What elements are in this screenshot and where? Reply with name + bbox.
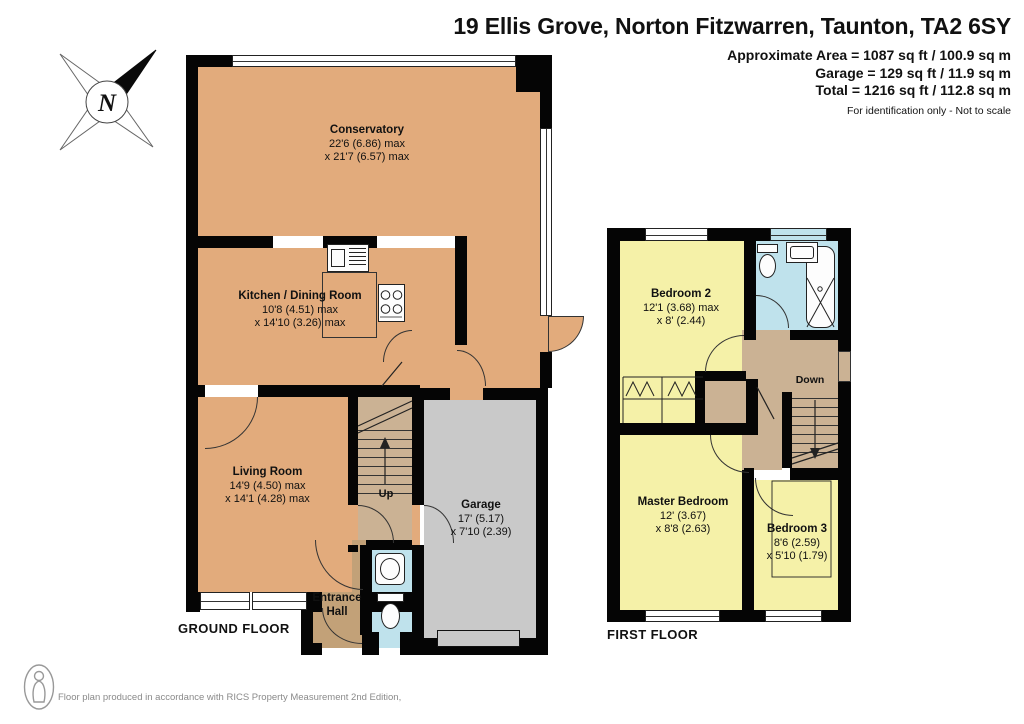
staircase-down-treads <box>792 398 838 456</box>
room-dimensions: 14'9 (4.50) max <box>170 480 365 494</box>
room-dimensions: x 5'10 (1.79) <box>737 550 857 564</box>
wall <box>782 392 792 468</box>
room-name: Master Bedroom <box>603 496 763 510</box>
back-door-swing <box>548 316 584 352</box>
wc-toilet-cistern <box>377 593 404 602</box>
conservatory-window <box>232 55 516 67</box>
wall <box>400 632 412 655</box>
wall <box>744 330 756 340</box>
wall <box>746 379 758 435</box>
wc-toilet-bowl <box>381 603 400 629</box>
garage-door <box>437 630 520 647</box>
conservatory-side-window <box>540 128 552 316</box>
wall <box>790 330 838 340</box>
room-label-conservatory: Conservatory 22'6 (6.86) max x 21'7 (6.5… <box>267 124 467 165</box>
room-dimensions: 8'6 (2.59) <box>737 537 857 551</box>
wall <box>186 55 198 612</box>
wall <box>790 468 838 480</box>
room-label-bedroom2: Bedroom 2 12'1 (3.68) max x 8' (2.44) <box>601 288 761 329</box>
wall <box>695 371 705 423</box>
staircase-up-treads <box>358 430 412 494</box>
wall <box>186 236 273 248</box>
floorplan-page: 19 Ellis Grove, Norton Fitzwarren, Taunt… <box>0 0 1024 724</box>
total-area-line: Total = 1216 sq ft / 112.8 sq m <box>727 82 1011 100</box>
wall <box>540 55 552 128</box>
room-label-garage: Garage 17' (5.17) x 7'10 (2.39) <box>421 499 541 540</box>
room-name: Bedroom 3 <box>737 523 857 537</box>
room-name: Conservatory <box>267 124 467 138</box>
living-room-window <box>200 592 250 610</box>
master-bedroom-window <box>645 610 720 622</box>
sink-drainer <box>349 248 366 268</box>
wall <box>412 388 424 505</box>
first-floor-title: FIRST FLOOR <box>607 627 698 642</box>
bathroom-sink-bowl <box>790 246 814 259</box>
wall <box>258 385 420 397</box>
wall <box>186 592 200 612</box>
compass-north-letter: N <box>97 90 117 117</box>
room-dimensions: 12' (3.67) <box>603 510 763 524</box>
room-name: Entrance Hall <box>303 592 371 619</box>
footer-line1: Floor plan produced in accordance with R… <box>58 692 419 705</box>
room-dimensions: x 14'10 (3.26) max <box>202 317 398 331</box>
wall <box>540 352 552 388</box>
closet-floor <box>705 381 746 423</box>
wall <box>186 55 233 67</box>
room-name: Kitchen / Dining Room <box>202 290 398 304</box>
wc-recess-floor <box>379 632 400 648</box>
wall <box>412 388 450 400</box>
footer-disclaimer: Floor plan produced in accordance with R… <box>58 667 419 724</box>
ground-floor-title: GROUND FLOOR <box>178 621 290 636</box>
toilet-cistern <box>757 244 778 253</box>
stairs-down-label: Down <box>782 374 838 386</box>
room-dimensions: 10'8 (4.51) max <box>202 304 398 318</box>
compass-icon: N <box>50 40 165 155</box>
room-label-kitchen: Kitchen / Dining Room 10'8 (4.51) max x … <box>202 290 398 331</box>
room-name: Bedroom 2 <box>601 288 761 302</box>
wall <box>612 423 746 435</box>
room-dimensions: 17' (5.17) <box>421 513 541 527</box>
stairs-up-label: Up <box>366 488 406 500</box>
room-dimensions: 12'1 (3.68) max <box>601 302 761 316</box>
area-summary: Approximate Area = 1087 sq ft / 100.9 sq… <box>727 47 1011 120</box>
landing-recess <box>838 351 851 382</box>
wall <box>186 385 205 397</box>
room-dimensions: x 7'10 (2.39) <box>421 526 541 540</box>
garage-area-line: Garage = 129 sq ft / 11.9 sq m <box>727 65 1011 83</box>
room-name: Living Room <box>170 466 365 480</box>
sink-bowl <box>331 249 345 267</box>
nichecom-person-icon <box>22 663 56 711</box>
room-name: Garage <box>421 499 541 513</box>
wall <box>455 236 467 345</box>
room-dimensions: 22'6 (6.86) max <box>267 138 467 152</box>
room-dimensions: x 21'7 (6.57) max <box>267 151 467 165</box>
wall <box>362 632 379 655</box>
approximate-area-line: Approximate Area = 1087 sq ft / 100.9 sq… <box>727 47 1011 65</box>
living-room-window <box>252 592 307 610</box>
wall <box>301 643 322 655</box>
bedroom2-window <box>645 228 708 241</box>
page-title: 19 Ellis Grove, Norton Fitzwarren, Taunt… <box>453 13 1011 40</box>
bedroom3-window <box>765 610 822 622</box>
room-dimensions: x 8' (2.44) <box>601 315 761 329</box>
room-label-living-room: Living Room 14'9 (4.50) max x 14'1 (4.28… <box>170 466 365 507</box>
disclaimer-text: For identification only - Not to scale <box>727 103 1011 121</box>
room-label-entrance-hall: Entrance Hall <box>303 592 371 619</box>
room-label-bedroom3: Bedroom 3 8'6 (2.59) x 5'10 (1.79) <box>737 523 857 564</box>
wc-basin-bowl <box>380 558 400 580</box>
bathroom-window <box>770 228 827 241</box>
room-dimensions: x 14'1 (4.28) max <box>170 493 365 507</box>
toilet-bowl <box>759 254 776 278</box>
